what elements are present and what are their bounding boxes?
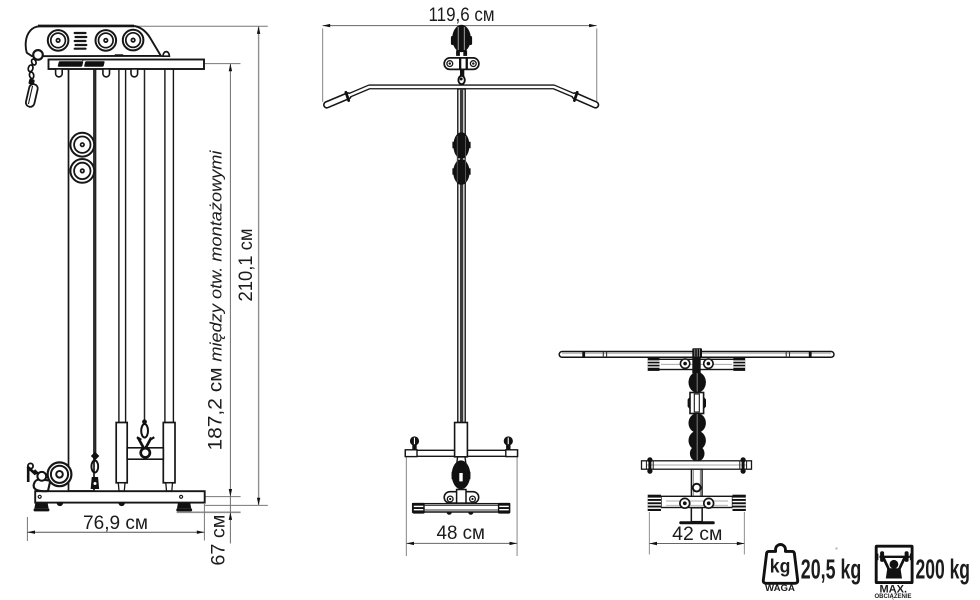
- svg-text:kg: kg: [770, 557, 791, 578]
- svg-text:119,6 см: 119,6 см: [429, 5, 495, 26]
- svg-text:OBCIĄŻENIE: OBCIĄŻENIE: [875, 592, 912, 600]
- svg-text:48 см: 48 см: [437, 523, 485, 544]
- svg-text:187,2 см między otw. montażowy: 187,2 см między otw. montażowymi: [206, 149, 227, 450]
- svg-text:WAGA: WAGA: [765, 583, 795, 594]
- svg-text:20,5 kg: 20,5 kg: [801, 554, 862, 585]
- svg-text:67 см: 67 см: [209, 515, 230, 566]
- svg-text:76,9 см: 76,9 см: [83, 513, 148, 534]
- svg-text:210,1 см: 210,1 см: [236, 229, 257, 302]
- svg-text:200 kg: 200 kg: [916, 554, 971, 585]
- svg-text:42 см: 42 см: [672, 524, 722, 545]
